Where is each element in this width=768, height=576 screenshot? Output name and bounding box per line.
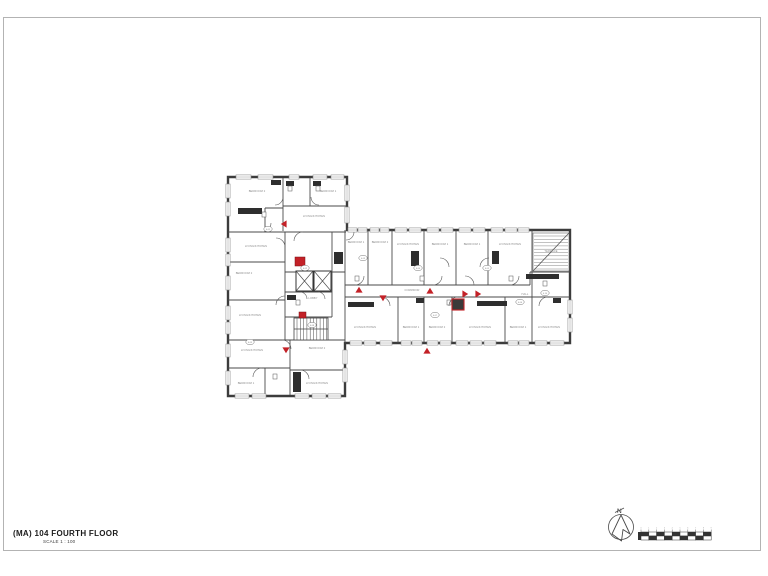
scale-bar-segment	[657, 532, 665, 536]
kitchen-fixture	[238, 208, 262, 214]
bath-fixture	[420, 276, 424, 281]
scale-bar-segment	[664, 536, 672, 540]
bath-fixture	[316, 186, 320, 191]
scale-bar-cap	[638, 532, 641, 540]
scale-bar-segment	[649, 536, 657, 540]
scale-bar-segment	[672, 532, 680, 536]
scale-bar-segment	[641, 532, 649, 536]
north-label: N	[617, 508, 622, 515]
scale-bar-tick-label: 5	[679, 528, 680, 530]
bath-fixture	[273, 374, 277, 379]
title-block: (MA) 104 FOURTH FLOOR SCALE 1 : 100	[13, 529, 118, 544]
scale-bar-tick-label: 9	[711, 528, 712, 530]
compass-needle-icon	[612, 515, 630, 541]
scale-bar-segment	[696, 536, 704, 540]
scale-bar-segment	[672, 536, 680, 540]
bath-fixture	[355, 276, 359, 281]
kitchen-fixture	[348, 302, 374, 307]
drawing-canvas: BEDROOM 2BEDROOM 1LIVING/KITCHENLIVING/K…	[0, 0, 768, 576]
scale-bar-segment	[688, 532, 696, 536]
compass-circle	[609, 515, 634, 540]
scale-bar: 0123456789	[638, 528, 712, 541]
scale-bar-tick-label: 1	[648, 528, 649, 530]
north-arrow: N	[609, 508, 634, 541]
kitchen-fixture	[416, 298, 424, 303]
kitchen-fixture	[477, 301, 507, 306]
bath-fixture	[288, 186, 292, 191]
scale-bar-segment	[703, 532, 711, 536]
scale-bar-tick-label: 2	[656, 528, 657, 530]
kitchen-fixture	[334, 252, 343, 264]
equipment-marker	[452, 299, 464, 310]
scale-bar-segment	[680, 532, 688, 536]
floor-plan: BEDROOM 2BEDROOM 1LIVING/KITCHENLIVING/K…	[226, 175, 572, 398]
scale-bar-segment	[688, 536, 696, 540]
kitchen-fixture	[293, 372, 301, 392]
scale-bar-tick-label: 0	[640, 528, 641, 530]
scale-bar-tick-label: 7	[695, 528, 696, 530]
direction-marker-icon	[423, 348, 430, 354]
riser-shaft-marker	[295, 257, 305, 266]
scale-bar-segment	[680, 536, 688, 540]
drawing-scale: SCALE 1 : 100	[43, 539, 118, 544]
scale-bar-segment	[649, 532, 657, 536]
bath-fixture	[296, 300, 300, 305]
riser-shaft-marker	[299, 312, 306, 318]
bath-fixture	[543, 281, 547, 286]
drawing-title: (MA) 104 FOURTH FLOOR	[13, 529, 118, 538]
kitchen-fixture	[526, 274, 559, 279]
scale-bar-segment	[703, 536, 711, 540]
scale-bar-segment	[664, 532, 672, 536]
scale-bar-tick-label: 4	[672, 528, 673, 530]
kitchen-fixture	[287, 295, 296, 300]
scale-bar-segment	[641, 536, 649, 540]
bath-fixture	[262, 212, 266, 217]
kitchen-fixture	[492, 251, 499, 264]
scale-bar-tick-label: 8	[703, 528, 704, 530]
scale-bar-tick-label: 6	[687, 528, 688, 530]
scale-bar-tick-labels: 0123456789	[640, 528, 711, 530]
scale-bar-segment	[696, 532, 704, 536]
kitchen-fixture	[271, 180, 281, 185]
kitchen-fixture	[286, 181, 294, 186]
outer-wall	[228, 177, 570, 396]
scale-bar-tick-label: 3	[664, 528, 665, 530]
scale-bar-segment	[657, 536, 665, 540]
bath-fixture	[509, 276, 513, 281]
kitchen-fixture	[553, 298, 561, 303]
kitchen-fixture	[313, 181, 321, 186]
kitchen-fixture	[411, 251, 419, 266]
